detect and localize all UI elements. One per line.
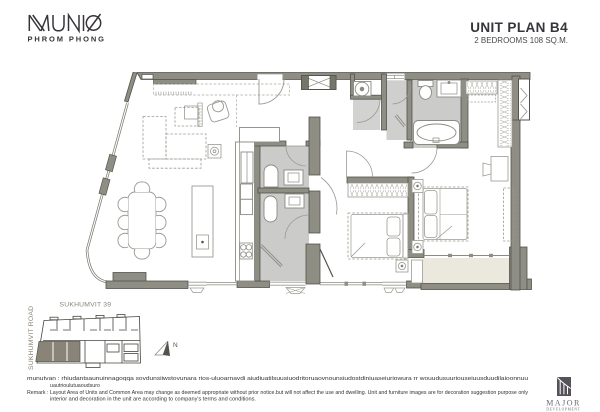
svg-text:2 BEDROOMS 108 SQ.M.: 2 BEDROOMS 108 SQ.M. bbox=[474, 36, 568, 45]
svg-text:SUKHUMVIT 39: SUKHUMVIT 39 bbox=[60, 302, 112, 309]
svg-text:MAJOR: MAJOR bbox=[546, 399, 581, 408]
svg-text:uautrioulutuaoudsuro: uautrioulutuaoudsuro bbox=[50, 383, 100, 389]
svg-text:munutvan : rhiudantsaunuinnago: munutvan : rhiudantsaunuinnagoqqa sovdun… bbox=[27, 376, 528, 382]
svg-text:interior and decoration in the: interior and decoration in the unit are … bbox=[50, 397, 256, 403]
svg-text:N: N bbox=[173, 342, 178, 349]
svg-text:SUKHUMVIT ROAD: SUKHUMVIT ROAD bbox=[28, 306, 35, 370]
svg-text:DEVELOPMENT: DEVELOPMENT bbox=[546, 408, 580, 412]
svg-text:PHROM PHONG: PHROM PHONG bbox=[28, 35, 106, 44]
svg-text:Remark : Layout Area of Unit: Remark : Layout Area of Units and Common… bbox=[27, 390, 528, 396]
svg-text:UNIT PLAN B4: UNIT PLAN B4 bbox=[470, 20, 568, 35]
